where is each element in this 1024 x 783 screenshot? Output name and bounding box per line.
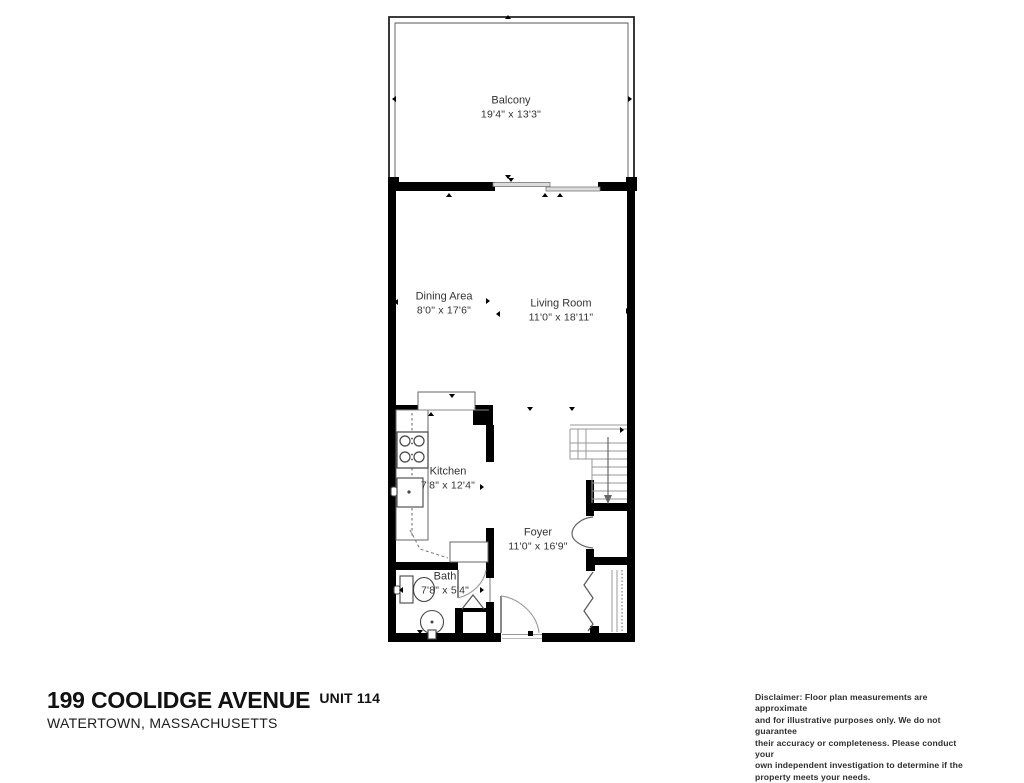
room-label-kitchen: Kitchen 7'8" x 12'4" bbox=[421, 466, 475, 493]
property-address: 199 COOLIDGE AVENUE bbox=[47, 688, 310, 712]
wall-foyer-bath bbox=[486, 602, 494, 642]
unit-number: UNIT 114 bbox=[319, 690, 380, 706]
room-dimensions: 8'0" x 17'6" bbox=[416, 304, 473, 318]
wall-left bbox=[388, 182, 396, 642]
room-name: Balcony bbox=[481, 95, 541, 109]
kitchen-bottom-counter bbox=[450, 542, 488, 562]
wall-stair-stub bbox=[586, 480, 594, 516]
entry-door-arc bbox=[501, 596, 539, 633]
room-dimensions: 7'8" x 5'4" bbox=[421, 584, 469, 598]
room-label-living-room: Living Room 11'0" x 18'11" bbox=[529, 298, 594, 325]
wall-accordion-top-stub bbox=[586, 563, 595, 571]
stairs bbox=[570, 425, 627, 504]
accordion-door bbox=[584, 572, 593, 631]
disclaimer-line: property meets your needs. bbox=[755, 772, 970, 783]
wall-right bbox=[627, 182, 635, 642]
closet-double-doors bbox=[572, 517, 593, 548]
disclaimer-line: and for illustrative purposes only. We d… bbox=[755, 715, 970, 738]
kitchen-peninsula bbox=[418, 392, 475, 410]
wall-bottom-right bbox=[542, 633, 635, 642]
sliding-door bbox=[493, 183, 600, 192]
title-block: 199 COOLIDGE AVENUE UNIT 114 WATERTOWN, … bbox=[47, 688, 380, 731]
room-dimensions: 7'8" x 12'4" bbox=[421, 479, 475, 493]
wall-bath-inner-v bbox=[455, 608, 463, 642]
wall-kitchen-corner bbox=[473, 405, 493, 425]
room-label-bath: Bath 7'8" x 5'4" bbox=[421, 571, 469, 598]
wall-bottom-left bbox=[388, 633, 501, 642]
disclaimer: Disclaimer: Floor plan measurements are … bbox=[755, 692, 970, 783]
address-row: 199 COOLIDGE AVENUE UNIT 114 bbox=[47, 688, 380, 712]
room-label-balcony: Balcony 19'4" x 13'3" bbox=[481, 95, 541, 122]
entry-door bbox=[501, 596, 542, 639]
room-dimensions: 19'4" x 13'3" bbox=[481, 108, 541, 122]
room-dimensions: 11'0" x 16'9" bbox=[508, 540, 567, 554]
room-name: Dining Area bbox=[416, 291, 473, 305]
room-label-foyer: Foyer 11'0" x 16'9" bbox=[508, 527, 567, 554]
disclaimer-line: Disclaimer: Floor plan measurements are … bbox=[755, 692, 970, 715]
room-name: Foyer bbox=[508, 527, 567, 541]
wall-top-right bbox=[598, 182, 635, 191]
room-name: Living Room bbox=[529, 298, 594, 312]
wall-closet-top bbox=[593, 503, 635, 511]
disclaimer-line: own independent investigation to determi… bbox=[755, 760, 970, 771]
disclaimer-line: their accuracy or completeness. Please c… bbox=[755, 738, 970, 761]
wall-kitchen-right-upper bbox=[486, 425, 494, 462]
room-dimensions: 11'0" x 18'11" bbox=[529, 311, 594, 325]
stairs-down-arrow bbox=[604, 437, 612, 504]
threshold-tick bbox=[528, 631, 533, 636]
wall-top-left bbox=[388, 182, 495, 191]
room-name: Bath bbox=[421, 571, 469, 585]
page: Balcony 19'4" x 13'3" Dining Area 8'0" x… bbox=[0, 0, 1024, 768]
stove-icon bbox=[397, 432, 428, 468]
room-label-dining-area: Dining Area 8'0" x 17'6" bbox=[416, 291, 473, 318]
room-name: Kitchen bbox=[421, 466, 475, 480]
accordion-closet bbox=[584, 570, 622, 632]
city-state: WATERTOWN, MASSACHUSETTS bbox=[47, 715, 380, 731]
